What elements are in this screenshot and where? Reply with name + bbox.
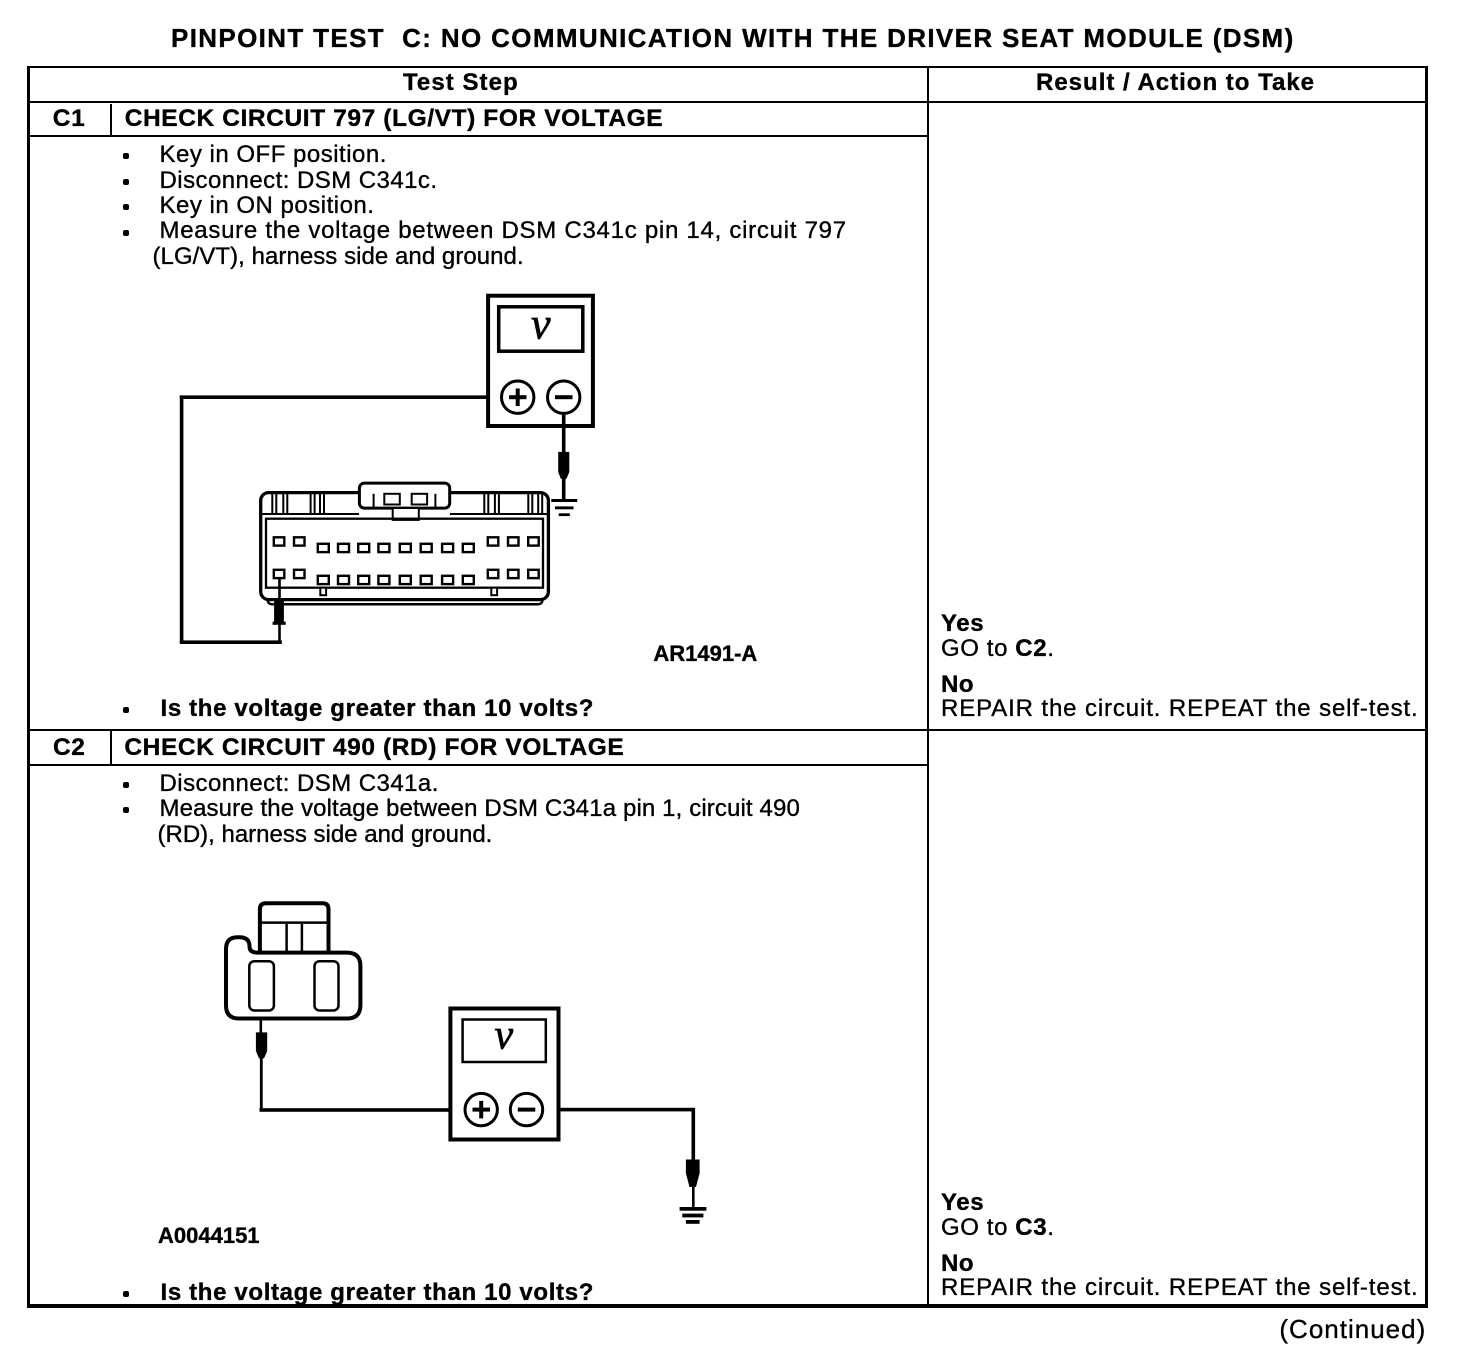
svg-text:ν: ν bbox=[495, 1013, 514, 1059]
svg-text:ν: ν bbox=[531, 300, 551, 349]
